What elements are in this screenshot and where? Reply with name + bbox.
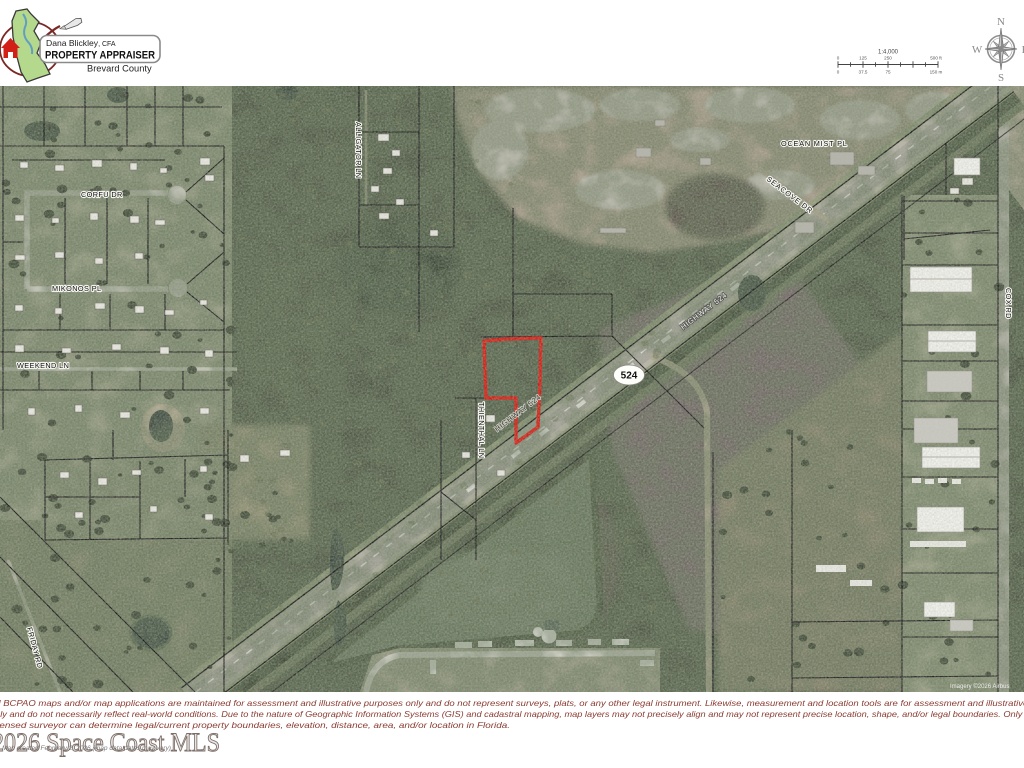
svg-text:CORFU DR: CORFU DR xyxy=(81,190,123,199)
svg-text:75: 75 xyxy=(885,70,891,75)
svg-text:2026 Space Coast MLS: 2026 Space Coast MLS xyxy=(0,728,220,757)
svg-text:0: 0 xyxy=(837,56,840,61)
svg-text:PROPERTY APPRAISER: PROPERTY APPRAISER xyxy=(45,50,155,62)
svg-text:37.5: 37.5 xyxy=(859,70,868,75)
svg-text:ALLIGATOR LN: ALLIGATOR LN xyxy=(354,122,363,178)
svg-text:Brevard County: Brevard County xyxy=(87,64,152,74)
svg-text:Imagery ©2026 Airbus: Imagery ©2026 Airbus xyxy=(950,683,1009,690)
svg-text:W: W xyxy=(972,44,983,56)
svg-text:WEEKEND LN: WEEKEND LN xyxy=(17,361,69,370)
svg-text:N: N xyxy=(997,16,1005,28)
svg-text:THIENTHAL LN: THIENTHAL LN xyxy=(477,402,486,458)
svg-text:All BCPAO maps and/or map appl: All BCPAO maps and/or map applications a… xyxy=(0,698,1024,708)
svg-text:MIKONOS PL: MIKONOS PL xyxy=(52,284,101,293)
svg-text:0: 0 xyxy=(837,70,840,75)
svg-text:500 ft: 500 ft xyxy=(930,56,942,61)
svg-text:125: 125 xyxy=(859,56,867,61)
svg-text:COX RD: COX RD xyxy=(1004,288,1013,319)
svg-text:250: 250 xyxy=(884,56,892,61)
svg-text:OCEAN MIST PL: OCEAN MIST PL xyxy=(781,139,848,148)
svg-text:150 m: 150 m xyxy=(930,70,943,75)
svg-text:524: 524 xyxy=(621,371,638,382)
svg-text:S: S xyxy=(998,72,1004,84)
svg-text:only and do not necessarily re: only and do not necessarily reflect real… xyxy=(0,709,1024,719)
